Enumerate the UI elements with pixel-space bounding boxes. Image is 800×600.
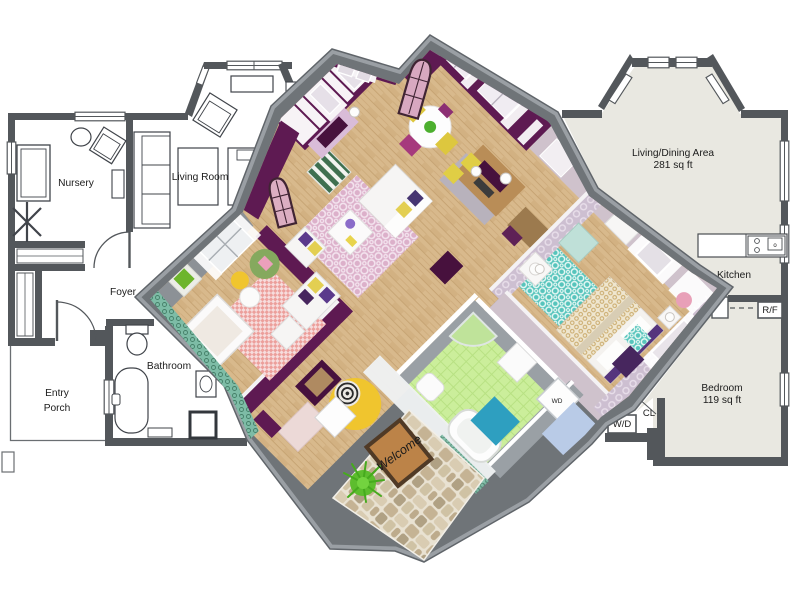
svg-text:Living/Dining Area: Living/Dining Area: [632, 148, 714, 159]
svg-text:Bedroom: Bedroom: [701, 383, 742, 394]
svg-text:Living Room: Living Room: [172, 172, 229, 183]
svg-text:CL: CL: [643, 408, 655, 419]
svg-text:Porch: Porch: [44, 403, 71, 414]
svg-text:119 sq ft: 119 sq ft: [703, 395, 741, 406]
svg-text:Foyer: Foyer: [110, 287, 137, 298]
svg-text:Entry: Entry: [45, 388, 70, 399]
svg-text:Bathroom: Bathroom: [147, 361, 191, 372]
svg-text:281 sq ft: 281 sq ft: [653, 160, 692, 171]
svg-text:Nursery: Nursery: [58, 178, 95, 189]
svg-text:WD: WD: [552, 398, 563, 405]
svg-text:R/F: R/F: [762, 305, 778, 316]
